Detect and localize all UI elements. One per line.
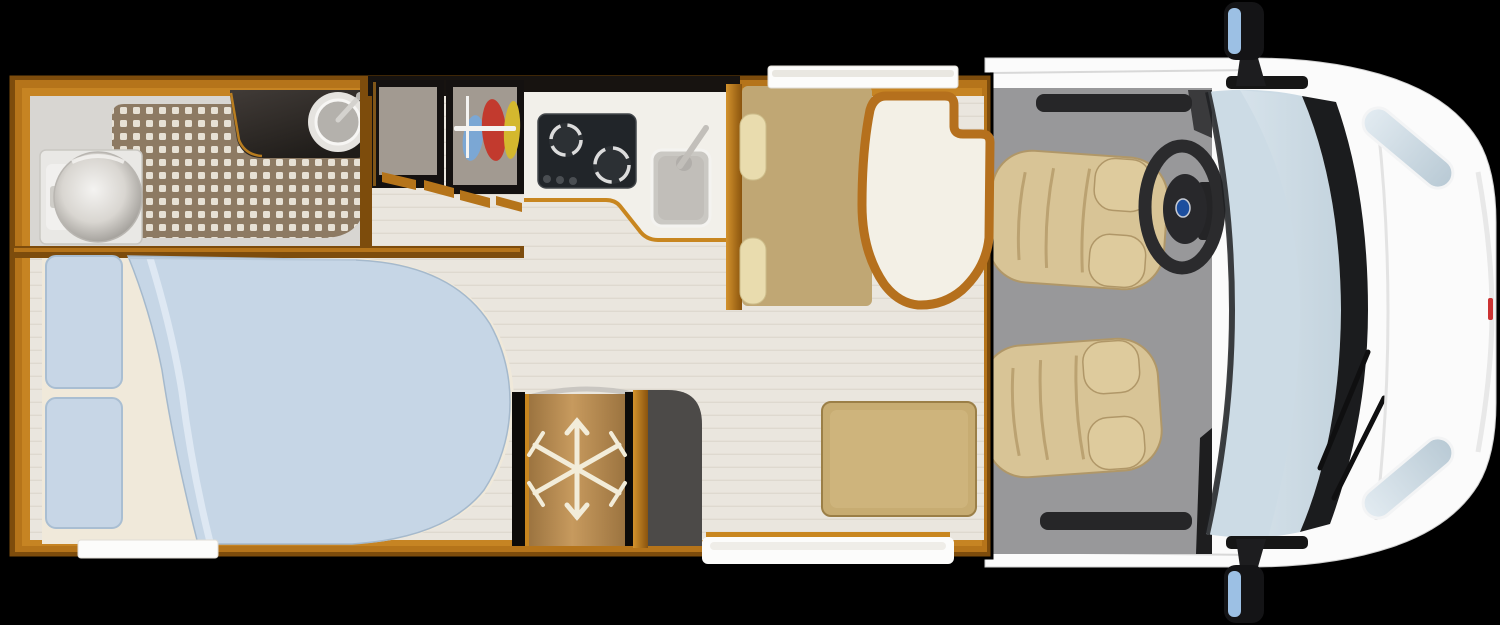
pillow [46,256,122,388]
fridge-wood-column [633,390,648,548]
bench-armrest-cushion [740,114,766,180]
front-badge-marker [1488,298,1493,320]
hanger-bar [466,96,469,158]
fridge-wood-edge [525,394,529,546]
cab-door-trim-bottom [1040,512,1192,530]
fridge-frame-left [512,392,525,546]
steering-wheel-badge-icon [1176,199,1190,217]
wardrobe-rail [454,126,516,131]
passenger-seat [980,336,1165,480]
vehicle-front [980,2,1496,623]
stove-burner [549,123,583,157]
fridge [512,389,702,548]
bathroom-right-wall [360,80,372,256]
bathroom [30,80,372,256]
wardrobe-cabinet [372,80,444,188]
entry-door-step [710,542,946,550]
stove-knob [569,177,577,185]
stove-burner [593,146,631,184]
window-bottom-left [78,540,218,558]
entry-door [702,537,954,564]
bench-armrest-cushion [740,238,766,304]
fridge-frame-right [625,392,633,546]
mirror-glass [1228,8,1241,54]
divider-wall-highlight [14,248,520,252]
cab-door-trim-top [1036,94,1192,112]
ottoman-highlight [830,410,968,508]
pillow [46,398,122,528]
dinette [740,86,990,306]
bed [42,256,514,544]
window-top-shade [772,70,954,77]
stove-knob [556,176,564,184]
clothes-wardrobe [446,80,524,194]
mirror-glass [1228,571,1241,617]
toilet [40,150,142,244]
stove-knob [543,175,551,183]
entry-door-trim [706,532,950,537]
floorplan-image [0,0,1500,625]
wardrobe-interior [379,87,437,175]
side-unit [648,390,702,546]
washbasin-counter [230,90,368,158]
stove [538,114,636,188]
toilet-bowl [54,152,142,242]
